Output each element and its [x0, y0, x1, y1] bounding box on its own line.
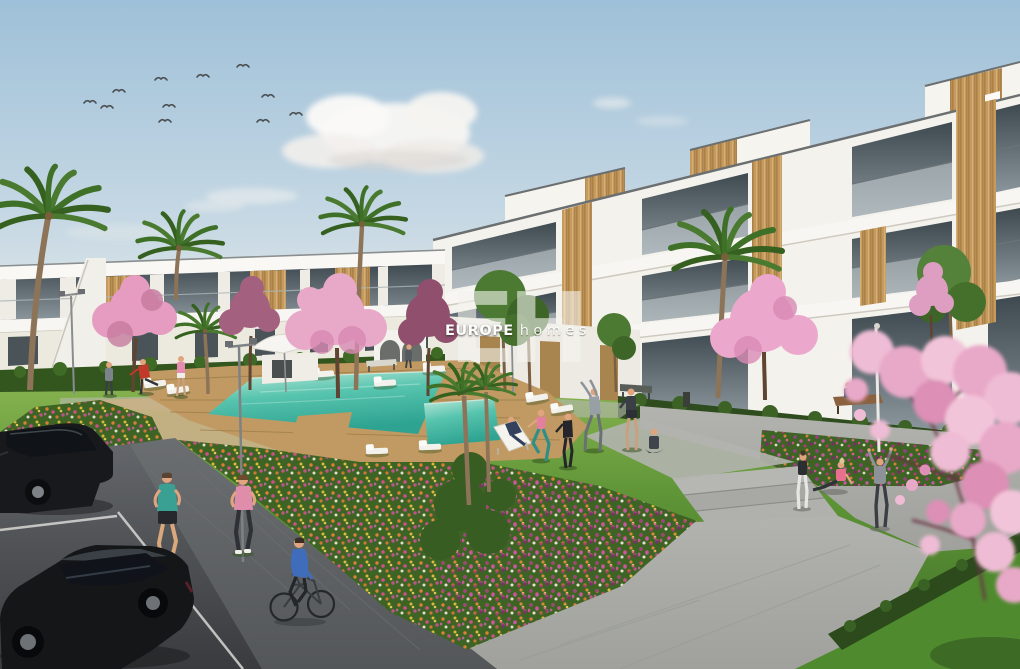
pool-kiosk	[262, 352, 318, 384]
trash-bin	[683, 392, 690, 407]
scene-render	[0, 0, 1020, 669]
render-canvas: E H EUROPEhomes	[0, 0, 1020, 669]
pool-deck-peninsula	[288, 412, 352, 448]
car-2	[0, 423, 113, 515]
